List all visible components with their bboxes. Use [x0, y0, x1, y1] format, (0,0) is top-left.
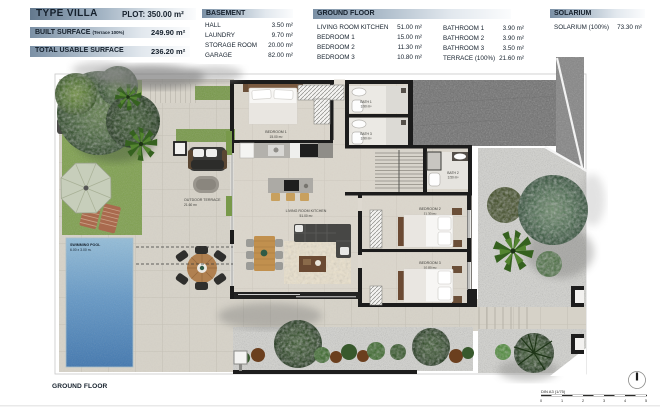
svg-text:3: 3	[603, 399, 605, 403]
svg-text:BEDROOM 2: BEDROOM 2	[419, 207, 441, 211]
svg-text:51.00 m²: 51.00 m²	[299, 214, 313, 218]
svg-text:1: 1	[561, 399, 563, 403]
svg-text:3.50 m²: 3.50 m²	[448, 176, 459, 180]
svg-text:3.90 m²: 3.90 m²	[361, 137, 372, 141]
svg-text:BATH 2: BATH 2	[447, 171, 459, 175]
svg-text:15.00 m²: 15.00 m²	[269, 135, 283, 139]
svg-text:3.90 m²: 3.90 m²	[361, 105, 372, 109]
svg-text:21.60 m²: 21.60 m²	[184, 203, 198, 207]
svg-text:0: 0	[540, 399, 542, 403]
svg-text:BEDROOM 1: BEDROOM 1	[265, 130, 287, 134]
svg-text:OUTDOOR TERRACE: OUTDOOR TERRACE	[184, 198, 221, 202]
svg-text:6.00 x 3.00 m.: 6.00 x 3.00 m.	[70, 248, 92, 252]
svg-text:SWIMMING POOL: SWIMMING POOL	[70, 243, 101, 247]
svg-text:2: 2	[582, 399, 584, 403]
svg-text:5: 5	[645, 399, 647, 403]
svg-text:DIN A3 (1/75): DIN A3 (1/75)	[541, 389, 566, 394]
svg-text:BATH 3: BATH 3	[360, 132, 372, 136]
svg-text:4: 4	[624, 399, 626, 403]
svg-text:BEDROOM 3: BEDROOM 3	[419, 261, 441, 265]
svg-text:BATH 1: BATH 1	[360, 100, 372, 104]
svg-text:LIVING ROOM KITCHEN: LIVING ROOM KITCHEN	[286, 209, 327, 213]
